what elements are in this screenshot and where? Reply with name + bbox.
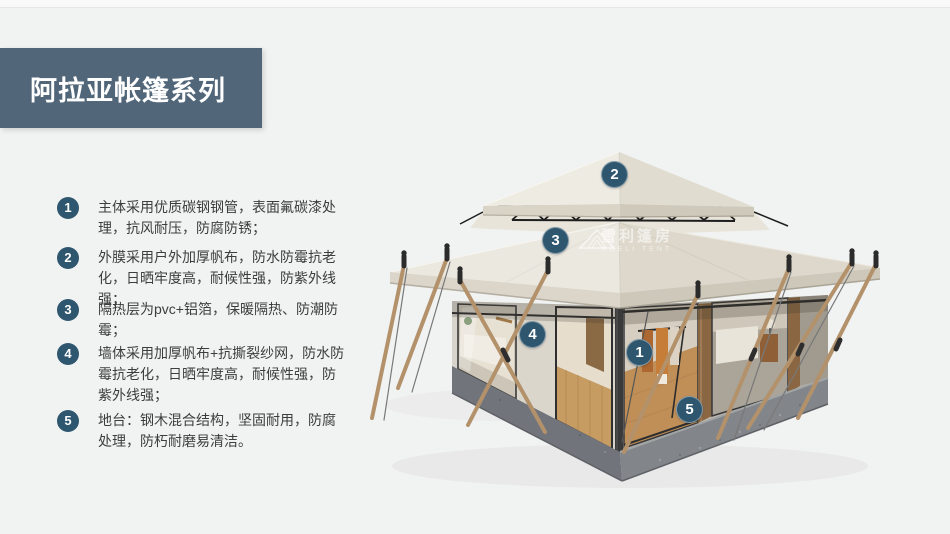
tent-illustration xyxy=(360,140,940,534)
callout-marker-2: 2 xyxy=(601,161,628,188)
feature-text: 地台：钢木混合结构，坚固耐用，防腐处理，防朽耐磨易清洁。 xyxy=(98,410,348,452)
feature-number-badge: 5 xyxy=(57,410,79,432)
feature-text: 墙体采用加厚帆布+抗撕裂纱网，防水防霉抗老化，日晒牢度高，耐候性强，防紫外线强； xyxy=(98,343,348,406)
corner-pole xyxy=(615,305,623,453)
feature-number-badge: 4 xyxy=(57,343,79,365)
page-title: 阿拉亚帐篷系列 xyxy=(0,69,226,108)
callout-marker-3: 3 xyxy=(542,227,569,254)
top-strip xyxy=(0,0,950,8)
feature-text: 隔热层为pvc+铝箔，保暖隔热、防潮防霉； xyxy=(98,299,348,341)
callout-marker-1: 1 xyxy=(626,339,653,366)
feature-text: 主体采用优质碳钢钢管，表面氟碳漆处理，抗风耐压，防腐防锈； xyxy=(98,197,348,239)
feature-item-3: 3 隔热层为pvc+铝箔，保暖隔热、防潮防霉； xyxy=(57,299,402,341)
feature-item-1: 1 主体采用优质碳钢钢管，表面氟碳漆处理，抗风耐压，防腐防锈； xyxy=(57,197,402,239)
tent-product-image: 雪利篷房 XUELI TENT 1 2 3 4 5 xyxy=(360,140,940,534)
feature-item-5: 5 地台：钢木混合结构，坚固耐用，防腐处理，防朽耐磨易清洁。 xyxy=(57,410,402,452)
slide-canvas: { "header": { "title": "阿拉亚帐篷系列" }, "fea… xyxy=(0,0,950,534)
callout-marker-5: 5 xyxy=(676,396,703,423)
main-roof xyxy=(390,222,880,308)
feature-number-badge: 3 xyxy=(57,299,79,321)
feature-number-badge: 1 xyxy=(57,197,79,219)
callout-marker-4: 4 xyxy=(519,321,546,348)
feature-number-badge: 2 xyxy=(57,247,79,269)
title-banner: 阿拉亚帐篷系列 xyxy=(0,48,262,128)
feature-item-4: 4 墙体采用加厚帆布+抗撕裂纱网，防水防霉抗老化，日晒牢度高，耐候性强，防紫外线… xyxy=(57,343,402,406)
